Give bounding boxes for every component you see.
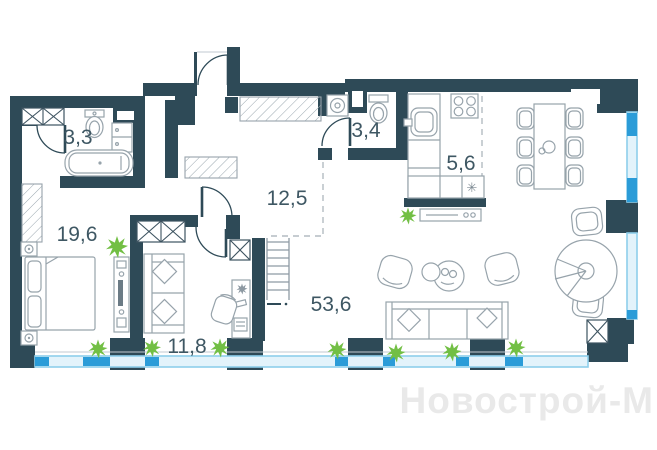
room-label-bedroom: 19,6: [57, 223, 98, 246]
sofa-small: [144, 254, 184, 333]
dining-chair: [566, 137, 583, 158]
vanity-cabinet: [112, 123, 132, 152]
floor-plan: Новострой-М: [0, 0, 657, 450]
printer-icon: [234, 318, 247, 331]
chair: [571, 207, 604, 237]
dining-table: [517, 104, 583, 189]
shaft-x-right: [587, 320, 608, 343]
stove-icon: [451, 94, 478, 118]
dining-chair: [566, 108, 583, 129]
shaft-x-hall: [230, 240, 250, 260]
tv-console: [114, 257, 129, 332]
window-right-lower: [627, 233, 637, 319]
nightstand: [21, 331, 37, 345]
dining-chair: [517, 137, 534, 158]
sideboard: [420, 209, 481, 221]
nightstand: [21, 242, 37, 256]
bathtub-icon: [65, 150, 133, 176]
dining-chair: [566, 165, 583, 186]
room-label-living: 53,6: [311, 293, 352, 316]
room-label-bathroom: 3,3: [63, 126, 92, 149]
floor-plan-svg: Новострой-М: [0, 0, 657, 450]
bed: [25, 257, 95, 330]
wardrobe-x-room: [137, 221, 185, 242]
sofa-large: [386, 302, 508, 339]
room-label-hallway: 12,5: [267, 187, 308, 210]
tv-icon: [118, 280, 123, 306]
hall-closet2-hatch: [185, 157, 237, 178]
dining-chair: [517, 108, 534, 129]
hall-closet-hatch: [240, 97, 321, 121]
dining-chair: [517, 165, 534, 186]
bedroom-wardrobe-hatch: [22, 184, 42, 242]
fridge-icon: ✳: [467, 181, 478, 196]
room-label-cabinet: 11,8: [167, 335, 206, 358]
shaft-x-bathroom: [22, 108, 64, 125]
room-label-kitchen: 5,6: [446, 152, 475, 175]
room-label-wc: 3,4: [351, 119, 381, 142]
watermark: Новострой-М: [400, 380, 654, 421]
washing-machine-icon: [327, 95, 348, 116]
